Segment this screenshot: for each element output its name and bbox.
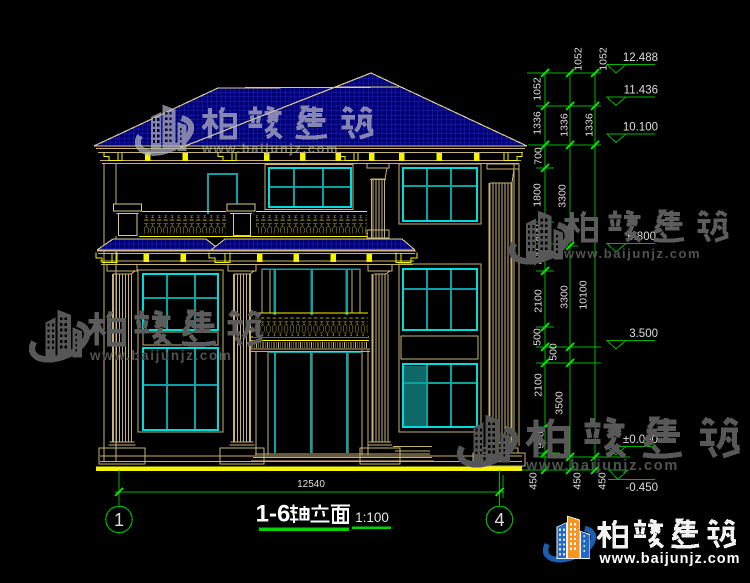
svg-text:3500: 3500 [554,391,566,415]
svg-text:450: 450 [572,472,584,490]
svg-text:12540: 12540 [297,479,325,490]
svg-text:1:100: 1:100 [355,510,389,525]
svg-text:4: 4 [494,510,504,530]
svg-text:www.baijunjz.com: www.baijunjz.com [89,348,232,363]
svg-text:1: 1 [114,510,124,530]
svg-text:10100: 10100 [578,280,590,309]
svg-text:500: 500 [532,328,544,346]
svg-text:1052: 1052 [532,77,544,101]
svg-text:2100: 2100 [533,289,545,313]
svg-text:-0.450: -0.450 [625,482,658,494]
svg-text:www.baijunjz.com: www.baijunjz.com [201,141,339,156]
svg-text:3300: 3300 [559,285,571,309]
svg-text:1336: 1336 [532,111,544,135]
svg-text:1800: 1800 [532,183,544,207]
svg-text:www.baijunjz.com: www.baijunjz.com [563,246,701,261]
svg-text:3.500: 3.500 [629,328,658,340]
svg-text:12.488: 12.488 [623,52,658,64]
svg-text:1-6: 1-6 [256,501,291,528]
svg-text:1336: 1336 [584,113,596,137]
svg-text:10.100: 10.100 [623,122,658,134]
svg-text:450: 450 [528,472,540,490]
svg-text:www.baijunjz.com: www.baijunjz.com [525,458,679,474]
svg-text:1052: 1052 [598,47,610,71]
svg-text:450: 450 [597,472,609,490]
svg-text:11.436: 11.436 [624,85,658,97]
svg-text:1052: 1052 [573,47,585,71]
svg-text:www.baijunjz.com: www.baijunjz.com [598,551,740,567]
svg-text:500: 500 [548,343,560,361]
svg-text:700: 700 [533,147,545,165]
svg-text:1336: 1336 [559,113,571,137]
svg-text:2100: 2100 [533,373,545,397]
svg-text:3300: 3300 [557,184,569,208]
